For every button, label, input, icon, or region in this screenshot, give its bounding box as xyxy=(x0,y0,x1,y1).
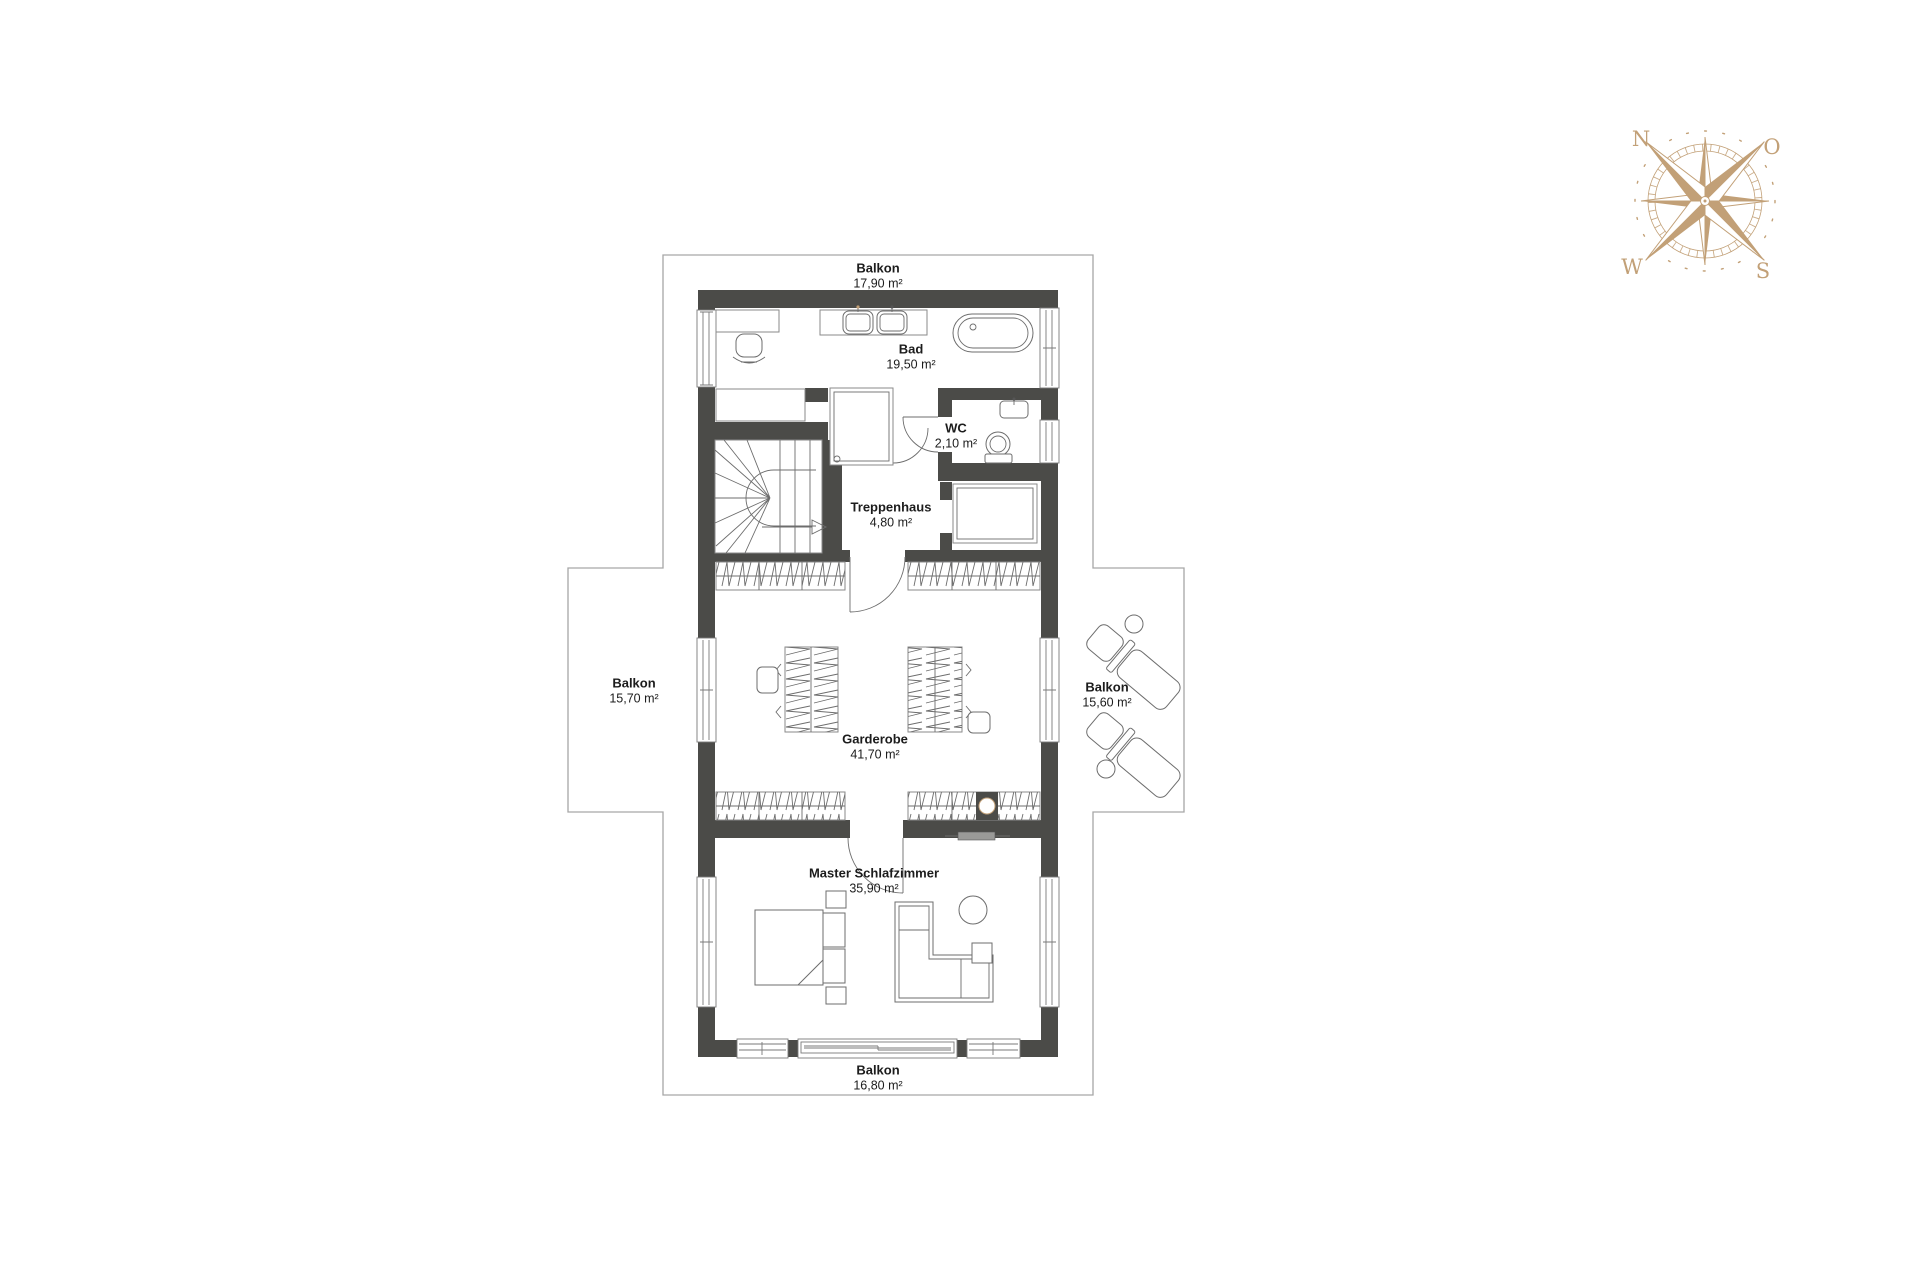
room-label-balkon-sued: Balkon 16,80 m² xyxy=(853,1063,902,1094)
room-name: Garderobe xyxy=(842,732,908,748)
floor-plan-page: Balkon 17,90 m² Bad 19,50 m² WC 2,10 m² … xyxy=(0,0,1920,1262)
door-garderobe xyxy=(850,557,905,612)
pouf-left xyxy=(757,667,778,693)
window-east-wc xyxy=(1040,420,1059,463)
room-label-master-schlafzimmer: Master Schlafzimmer 35,90 m² xyxy=(809,866,939,897)
door-wc xyxy=(903,417,938,452)
master-fixtures xyxy=(755,832,1010,1004)
wardrobe-north-left xyxy=(716,562,845,590)
built-in-cabinet xyxy=(716,389,805,421)
wardrobe-island-right xyxy=(908,647,971,732)
compass-letter-east: O xyxy=(1763,135,1780,159)
garderobe-fixtures xyxy=(716,562,1040,820)
wc-sink xyxy=(1000,398,1028,419)
room-name: Balkon xyxy=(1082,680,1131,696)
room-label-balkon-nord: Balkon 17,90 m² xyxy=(853,261,902,292)
window-east-master xyxy=(1040,877,1059,1007)
room-area: 35,90 m² xyxy=(809,881,939,896)
compass-letter-west: W xyxy=(1621,255,1643,279)
room-area: 41,70 m² xyxy=(842,747,908,762)
room-name: Bad xyxy=(886,342,935,358)
window-south-left xyxy=(737,1039,788,1058)
room-area: 15,70 m² xyxy=(609,691,658,706)
round-table xyxy=(959,896,987,924)
room-name: Balkon xyxy=(853,1063,902,1079)
room-name: Balkon xyxy=(609,676,658,692)
compass-letter-south: S xyxy=(1756,259,1770,283)
window-east-bad xyxy=(1040,308,1059,388)
window-south-right xyxy=(967,1039,1020,1058)
room-label-garderobe: Garderobe 41,70 m² xyxy=(842,732,908,763)
lounger-table-1 xyxy=(1125,615,1143,633)
staircase xyxy=(715,440,826,553)
room-name: Treppenhaus xyxy=(851,500,932,516)
wardrobe-south-right xyxy=(908,792,1040,820)
nightstand-bottom xyxy=(826,987,846,1004)
room-area: 2,10 m² xyxy=(935,436,977,451)
room-area: 19,50 m² xyxy=(886,357,935,372)
wardrobe-north-right xyxy=(908,562,1040,590)
room-area: 16,80 m² xyxy=(853,1078,902,1093)
sun-lounger-2 xyxy=(1081,707,1184,802)
room-area: 4,80 m² xyxy=(851,515,932,530)
shower xyxy=(830,388,893,465)
room-label-balkon-west: Balkon 15,70 m² xyxy=(609,676,658,707)
desk-chair xyxy=(733,334,765,363)
sliding-door-south xyxy=(798,1039,957,1058)
door-bad xyxy=(893,428,928,463)
toilet xyxy=(985,432,1012,463)
room-name: Balkon xyxy=(853,261,902,277)
window-east-garderobe xyxy=(1040,638,1059,742)
side-table xyxy=(972,943,992,963)
balcony-boundary xyxy=(568,255,1184,1095)
window-west-master xyxy=(697,877,716,1007)
window-west-bad xyxy=(697,310,716,387)
room-area: 15,60 m² xyxy=(1082,695,1131,710)
wc-fixtures xyxy=(985,398,1028,464)
room-area: 17,90 m² xyxy=(853,276,902,291)
lounger-table-2 xyxy=(1097,760,1115,778)
room-label-balkon-ost: Balkon 15,60 m² xyxy=(1082,680,1131,711)
wardrobe-south-left xyxy=(716,792,845,820)
room-label-wc: WC 2,10 m² xyxy=(935,421,977,452)
wardrobe-island-left xyxy=(776,647,838,732)
bed xyxy=(755,891,846,1004)
pouf-right xyxy=(968,712,990,733)
room-label-bad: Bad 19,50 m² xyxy=(886,342,935,373)
room-name: Master Schlafzimmer xyxy=(809,866,939,882)
vanity-desk xyxy=(716,310,779,332)
bathtub xyxy=(953,314,1033,352)
compass-rose-icon: N O W S xyxy=(1597,93,1813,309)
elevator-shaft xyxy=(953,484,1037,543)
room-name: WC xyxy=(935,421,977,437)
window-west-garderobe xyxy=(697,638,716,742)
room-label-treppenhaus: Treppenhaus 4,80 m² xyxy=(851,500,932,531)
compass-letter-north: N xyxy=(1632,127,1650,151)
